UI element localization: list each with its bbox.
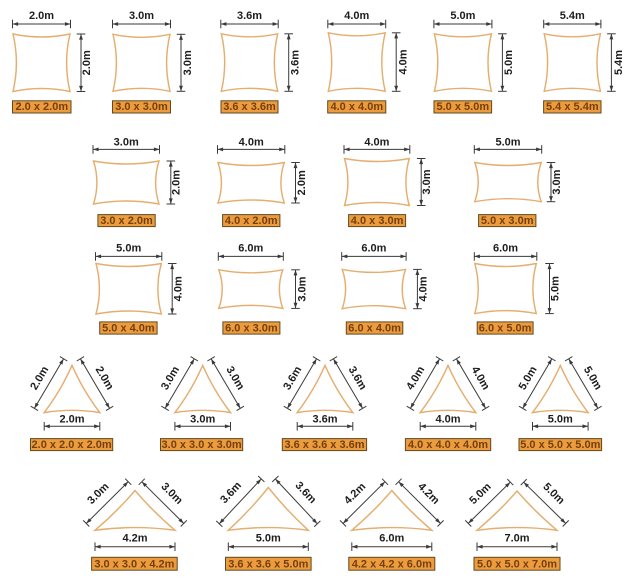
svg-text:3.6 x 3.6m: 3.6 x 3.6m (223, 101, 276, 113)
svg-text:6.0 x 4.0m: 6.0 x 4.0m (348, 322, 401, 334)
svg-text:3.0 x 3.0 x 4.2m: 3.0 x 3.0 x 4.2m (94, 558, 174, 570)
svg-text:5.0m: 5.0m (503, 50, 515, 75)
svg-text:3.6m: 3.6m (293, 480, 319, 507)
svg-text:4.0m: 4.0m (397, 49, 409, 74)
svg-text:4.0 x 3.0m: 4.0 x 3.0m (351, 215, 404, 227)
svg-text:3.6m: 3.6m (218, 479, 244, 506)
svg-text:6.0m: 6.0m (493, 243, 518, 255)
svg-text:4.0m: 4.0m (417, 276, 429, 301)
svg-text:3.6m: 3.6m (290, 50, 302, 75)
svg-text:5.0 x 5.0m: 5.0 x 5.0m (437, 101, 490, 113)
svg-text:3.0m: 3.0m (190, 414, 215, 426)
svg-text:3.0m: 3.0m (421, 169, 433, 194)
svg-text:6.0m: 6.0m (361, 243, 386, 255)
svg-text:2.0 x 2.0 x 2.0m: 2.0 x 2.0 x 2.0m (32, 439, 112, 451)
svg-text:3.0m: 3.0m (551, 169, 563, 194)
svg-text:4.0 x 4.0m: 4.0 x 4.0m (331, 101, 384, 113)
svg-text:3.0 x 3.0m: 3.0 x 3.0m (115, 101, 168, 113)
svg-text:3.6 x 3.6 x 5.0m: 3.6 x 3.6 x 5.0m (228, 558, 308, 570)
svg-text:2.0m: 2.0m (81, 50, 93, 75)
svg-text:5.0m: 5.0m (548, 414, 573, 426)
svg-text:2.0 x 2.0m: 2.0 x 2.0m (16, 101, 69, 113)
svg-text:4.0m: 4.0m (344, 10, 369, 22)
svg-text:3.6m: 3.6m (237, 10, 262, 22)
svg-text:3.0m: 3.0m (158, 481, 184, 507)
svg-text:3.0 x 2.0m: 3.0 x 2.0m (100, 215, 153, 227)
svg-text:3.0m: 3.0m (129, 10, 154, 22)
svg-text:5.0 x 5.0 x 5.0m: 5.0 x 5.0 x 5.0m (520, 439, 600, 451)
svg-text:5.0 x 4.0m: 5.0 x 4.0m (102, 322, 155, 334)
svg-text:7.0m: 7.0m (504, 533, 529, 545)
svg-text:5.4m: 5.4m (560, 10, 585, 22)
svg-text:6.0 x 5.0m: 6.0 x 5.0m (479, 322, 532, 334)
svg-text:3.0m: 3.0m (223, 364, 246, 392)
svg-text:4.0m: 4.0m (173, 276, 185, 301)
svg-text:6.0 x 3.0m: 6.0 x 3.0m (225, 322, 278, 334)
svg-text:6.0m: 6.0m (238, 243, 263, 255)
svg-text:4.0 x 4.0 x 4.0m: 4.0 x 4.0 x 4.0m (408, 439, 488, 451)
svg-text:4.0m: 4.0m (469, 364, 492, 392)
svg-text:3.0m: 3.0m (114, 137, 139, 149)
svg-text:3.0m: 3.0m (159, 364, 182, 392)
svg-text:5.0m: 5.0m (495, 137, 520, 149)
svg-text:6.0m: 6.0m (379, 533, 404, 545)
svg-text:5.4m: 5.4m (613, 50, 625, 75)
svg-text:3.6m: 3.6m (312, 414, 337, 426)
svg-text:3.0m: 3.0m (85, 481, 111, 507)
svg-text:5.4 x 5.4m: 5.4 x 5.4m (546, 101, 599, 113)
svg-text:3.6m: 3.6m (346, 364, 369, 392)
svg-text:2.0m: 2.0m (93, 364, 116, 392)
svg-text:2.0m: 2.0m (28, 364, 51, 392)
svg-text:4.0m: 4.0m (239, 137, 264, 149)
svg-text:3.6m: 3.6m (281, 364, 304, 392)
svg-text:4.2 x 4.2 x 6.0m: 4.2 x 4.2 x 6.0m (352, 558, 432, 570)
svg-text:5.0 x 5.0 x 7.0m: 5.0 x 5.0 x 7.0m (477, 558, 557, 570)
svg-text:4.0m: 4.0m (404, 364, 427, 392)
svg-text:5.0 x 3.0m: 5.0 x 3.0m (481, 215, 534, 227)
svg-text:5.0m: 5.0m (467, 481, 493, 507)
svg-text:4.0m: 4.0m (364, 137, 389, 149)
svg-text:2.0m: 2.0m (171, 170, 183, 195)
svg-text:4.0m: 4.0m (435, 414, 460, 426)
svg-text:5.0m: 5.0m (450, 10, 475, 22)
svg-text:3.0m: 3.0m (182, 50, 194, 75)
svg-text:4.2m: 4.2m (415, 481, 441, 507)
svg-text:5.0m: 5.0m (540, 481, 566, 507)
svg-text:5.0m: 5.0m (550, 276, 562, 301)
svg-text:4.2m: 4.2m (342, 481, 368, 507)
svg-text:2.0m: 2.0m (296, 170, 308, 195)
svg-text:4.2m: 4.2m (122, 533, 147, 545)
svg-text:5.0m: 5.0m (581, 364, 604, 392)
svg-text:5.0m: 5.0m (116, 243, 141, 255)
svg-text:3.6 x 3.6 x 3.6m: 3.6 x 3.6 x 3.6m (284, 439, 364, 451)
svg-text:3.0m: 3.0m (296, 276, 308, 301)
svg-text:5.0m: 5.0m (256, 533, 281, 545)
svg-text:4.0 x 2.0m: 4.0 x 2.0m (225, 215, 278, 227)
svg-text:5.0m: 5.0m (517, 364, 540, 392)
svg-text:2.0m: 2.0m (59, 414, 84, 426)
svg-text:2.0m: 2.0m (29, 10, 54, 22)
svg-text:3.0 x 3.0 x 3.0m: 3.0 x 3.0 x 3.0m (162, 439, 242, 451)
